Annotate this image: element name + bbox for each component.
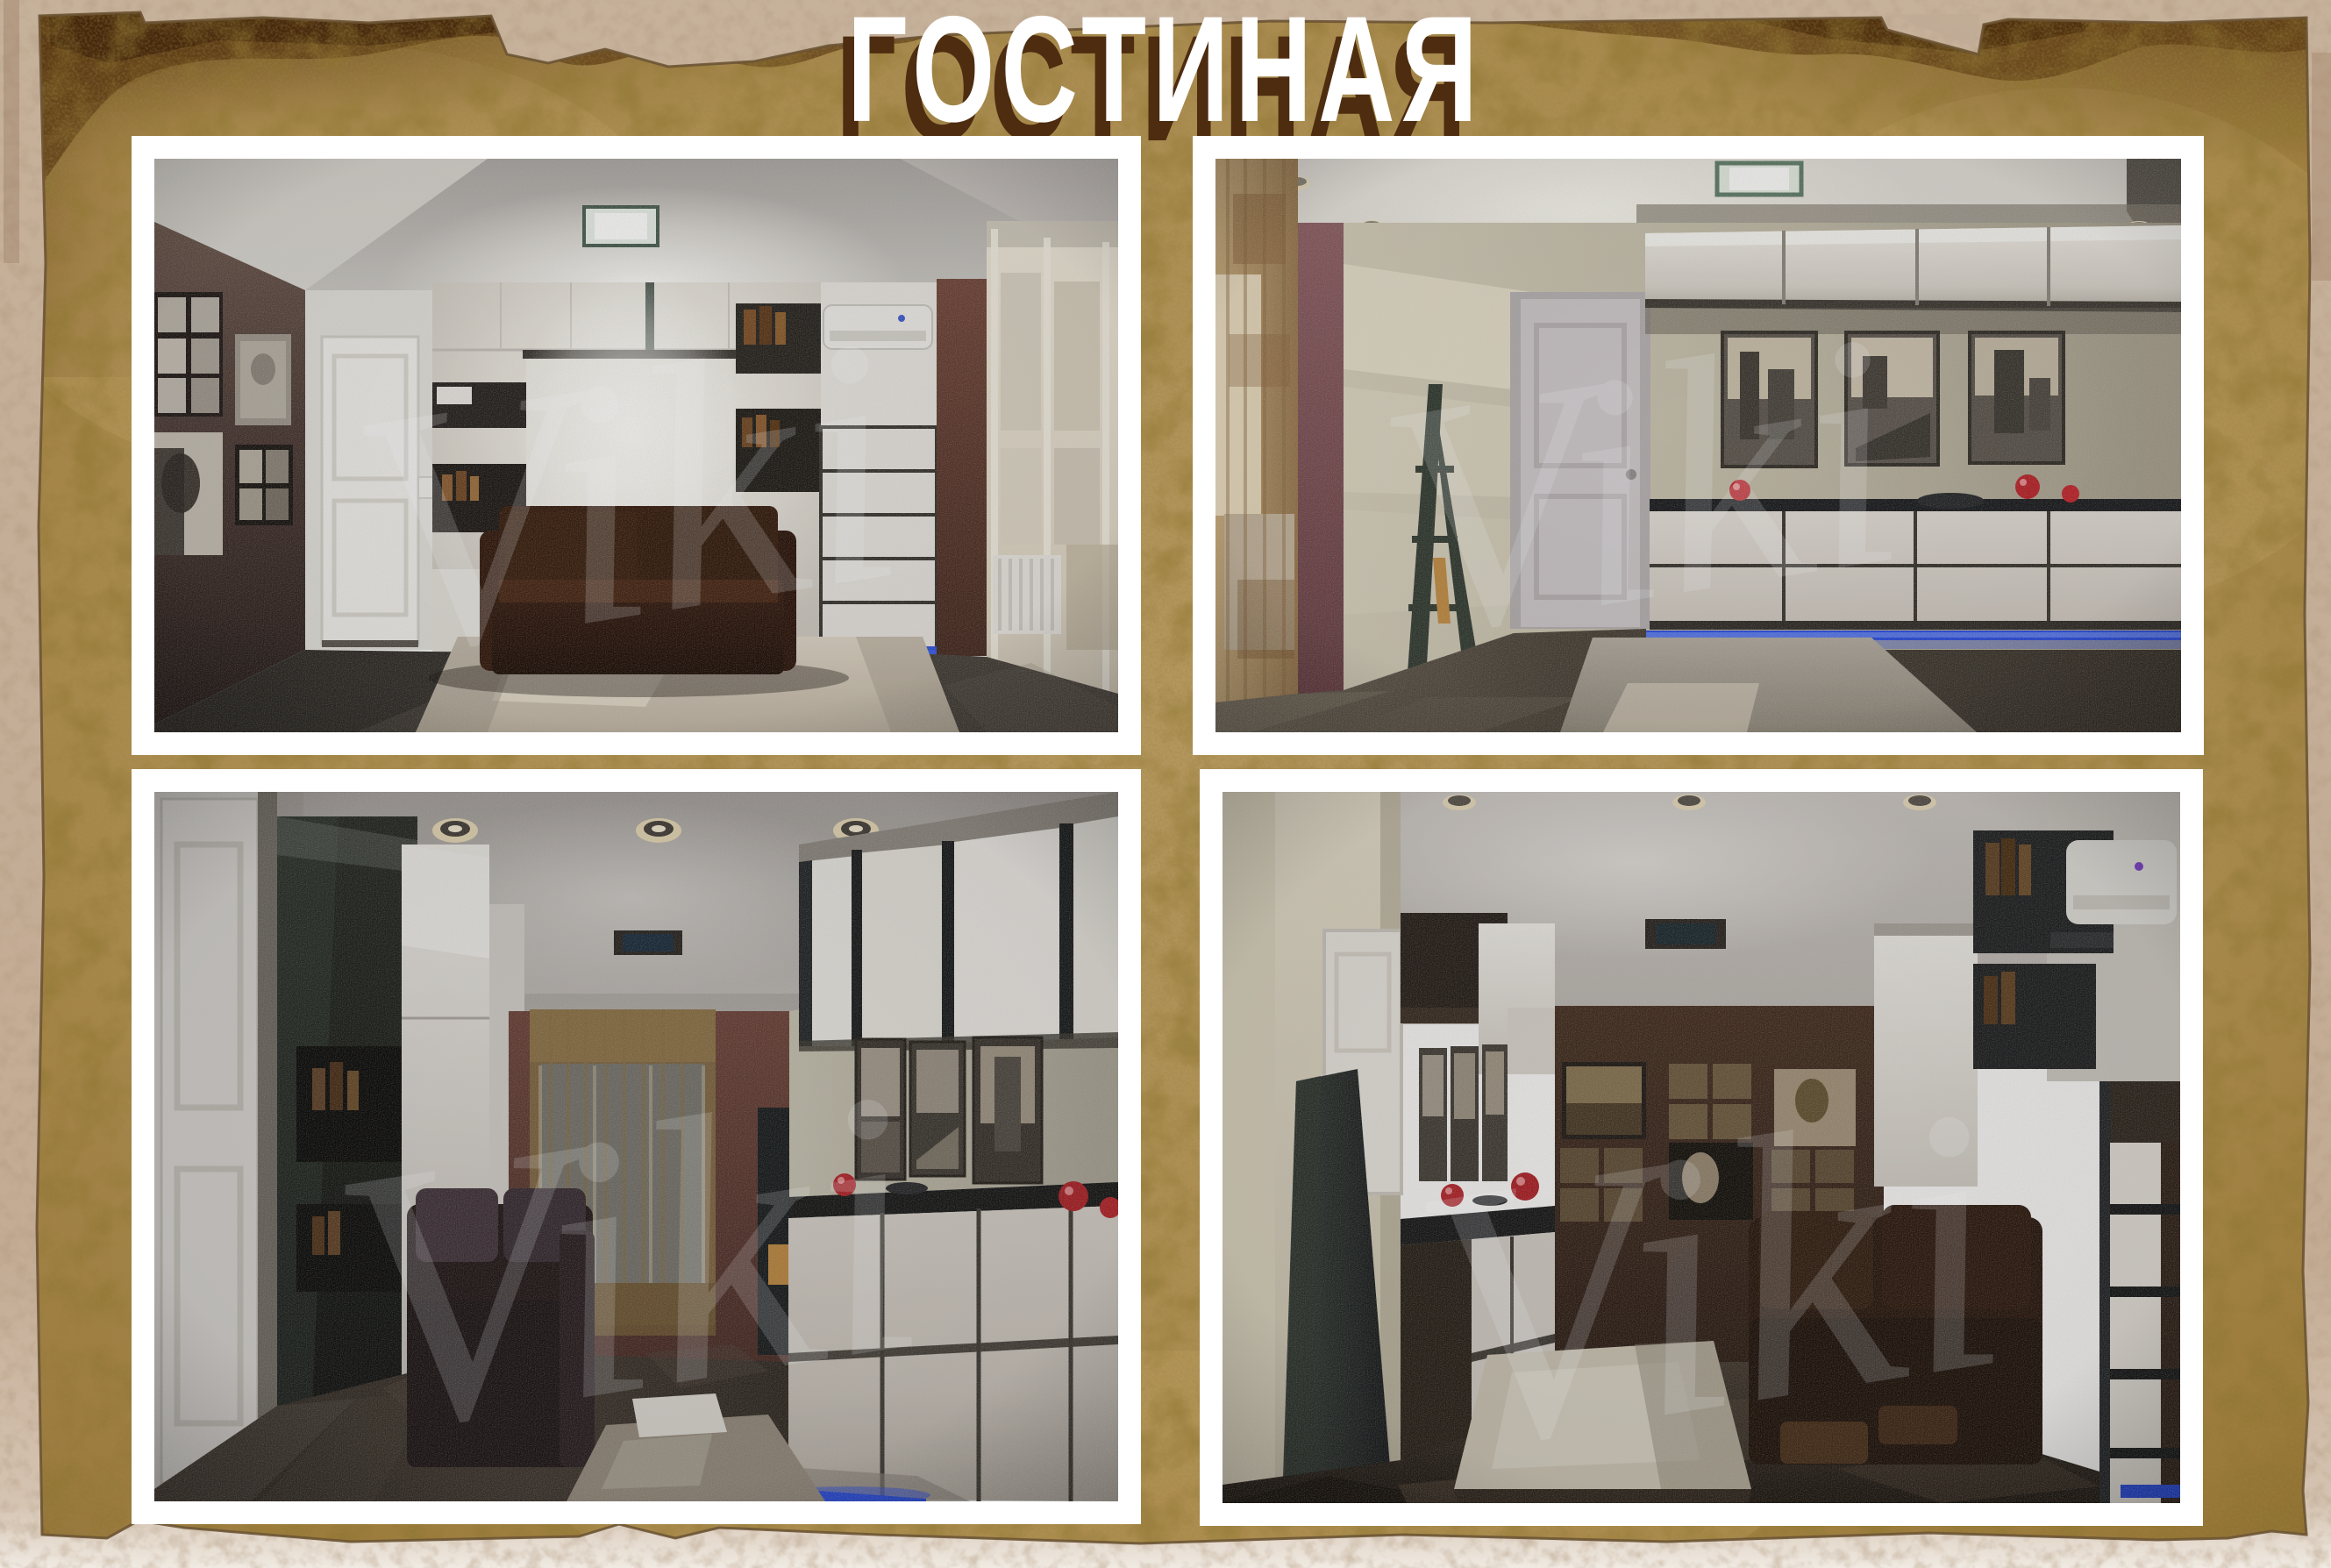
- svg-text:Viki: Viki: [1359, 263, 1922, 708]
